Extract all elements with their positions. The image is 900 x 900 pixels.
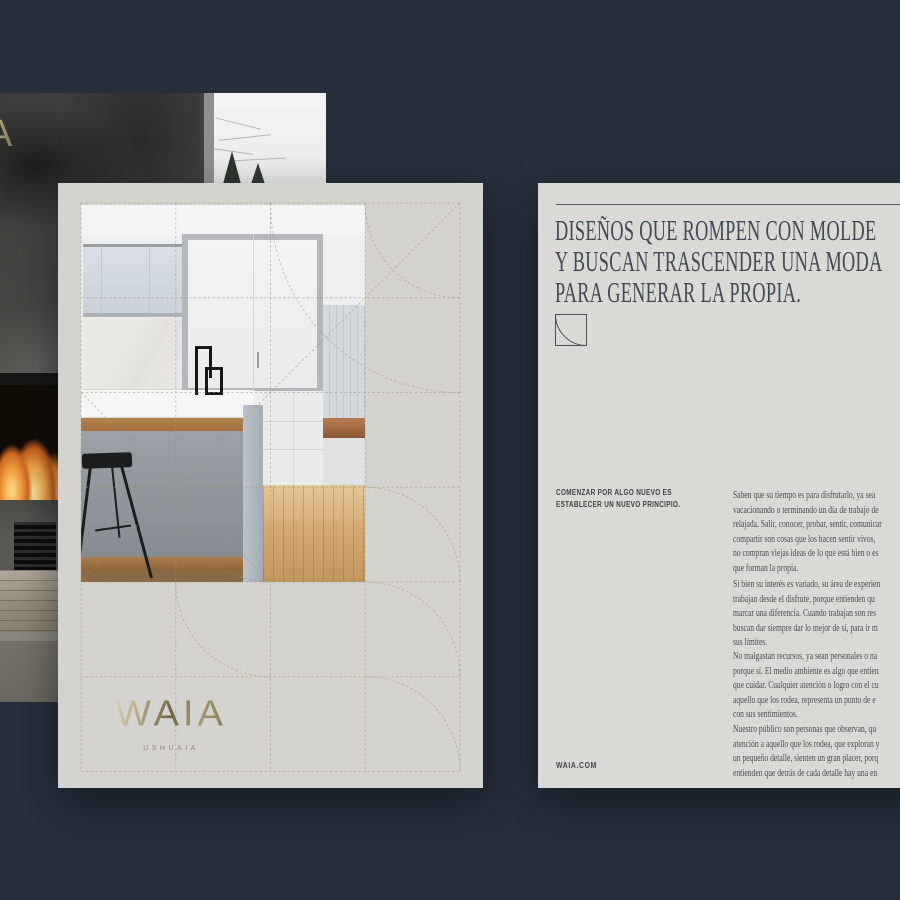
brochure-cover-card: WAIA USHUAIA	[58, 183, 483, 788]
body-line: porque sí. El medio ambiente es algo que…	[733, 664, 879, 679]
body-line: Si bien su interés es variado, su área d…	[733, 577, 880, 592]
body-line: un pequeño detalle, sienten un gran plac…	[733, 751, 879, 766]
eyebrow-line: ESTABLECER UN NUEVO PRINCIPIO.	[556, 499, 680, 511]
conifer-tree	[251, 163, 265, 184]
top-rule	[556, 204, 900, 205]
fireplace-vent	[14, 522, 56, 570]
conifer-tree	[223, 151, 241, 184]
stone-bench	[0, 632, 60, 702]
partial-gold-logo-letter: A	[0, 113, 14, 156]
headline-line: Y BUSCAN TRASCENDER UNA MODA	[555, 247, 883, 278]
body-line: sus límites.	[733, 635, 880, 650]
body-line: atención a aquello que los rodea, que ex…	[733, 737, 879, 752]
arc-square-icon	[555, 314, 587, 346]
fireplace-lintel	[0, 373, 64, 385]
branch-sketch	[216, 117, 261, 129]
waia-logo: WAIA	[115, 694, 227, 735]
body-paragraph: Si bien su interés es variado, su área d…	[733, 577, 900, 650]
presentation-canvas: A	[0, 0, 900, 900]
body-line: relajada. Salir, conocer, probar, sentir…	[733, 517, 882, 532]
body-line: marcar una diferencia. Cuando trabajan s…	[733, 606, 880, 621]
body-line: trabajan desde el disfrute, porque entie…	[733, 592, 880, 607]
photo-dark-edge	[201, 93, 214, 184]
mountain-backdrop-photo	[201, 93, 326, 184]
body-line: vacacionando o terminando un día de trab…	[733, 503, 882, 518]
body-paragraph: Saben que su tiempo es para disfrutarlo,…	[733, 488, 900, 576]
body-paragraph: Nuestro público son personas que observa…	[733, 722, 900, 780]
body-paragraph: No malgastan recursos, ya sean personale…	[733, 649, 900, 722]
section-eyebrow: COMENZAR POR ALGO NUEVO ES ESTABLECER UN…	[556, 487, 711, 511]
fireplace-fire	[0, 385, 62, 500]
body-line: aquello que los rodea, representa un pun…	[733, 693, 879, 708]
body-line: entienden que detrás de cada detalle hay…	[733, 766, 879, 781]
website-label: WAIA.COM	[556, 761, 597, 770]
headline-line: PARA GENERAR LA PROPIA.	[555, 278, 883, 309]
page-headline: DISEÑOS QUE ROMPEN CON MOLDE Y BUSCAN TR…	[555, 216, 900, 309]
body-line: Saben que su tiempo es para disfrutarlo,…	[733, 488, 882, 503]
manifesto-page-card: DISEÑOS QUE ROMPEN CON MOLDE Y BUSCAN TR…	[538, 183, 900, 788]
waia-location-label: USHUAIA	[81, 745, 261, 752]
body-line: no compran viejas ideas de lo que está b…	[733, 546, 882, 561]
eyebrow-line: COMENZAR POR ALGO NUEVO ES	[556, 487, 680, 499]
body-line: Nuestro público son personas que observa…	[733, 722, 879, 737]
body-line: No malgastan recursos, ya sean personale…	[733, 649, 879, 664]
headline-line: DISEÑOS QUE ROMPEN CON MOLDE	[555, 216, 883, 247]
body-line: compartir son cosas que los hacen sentir…	[733, 532, 882, 547]
branch-sketch	[219, 134, 271, 140]
body-line: buscan dar siempre dar lo mejor de sí, p…	[733, 621, 880, 636]
body-line: con sus sentimientos.	[733, 707, 879, 722]
brand-block: WAIA USHUAIA	[81, 693, 261, 752]
body-line: que cuidar. Cualquier atención o logro c…	[733, 678, 879, 693]
body-line: que forman la propia.	[733, 561, 882, 576]
